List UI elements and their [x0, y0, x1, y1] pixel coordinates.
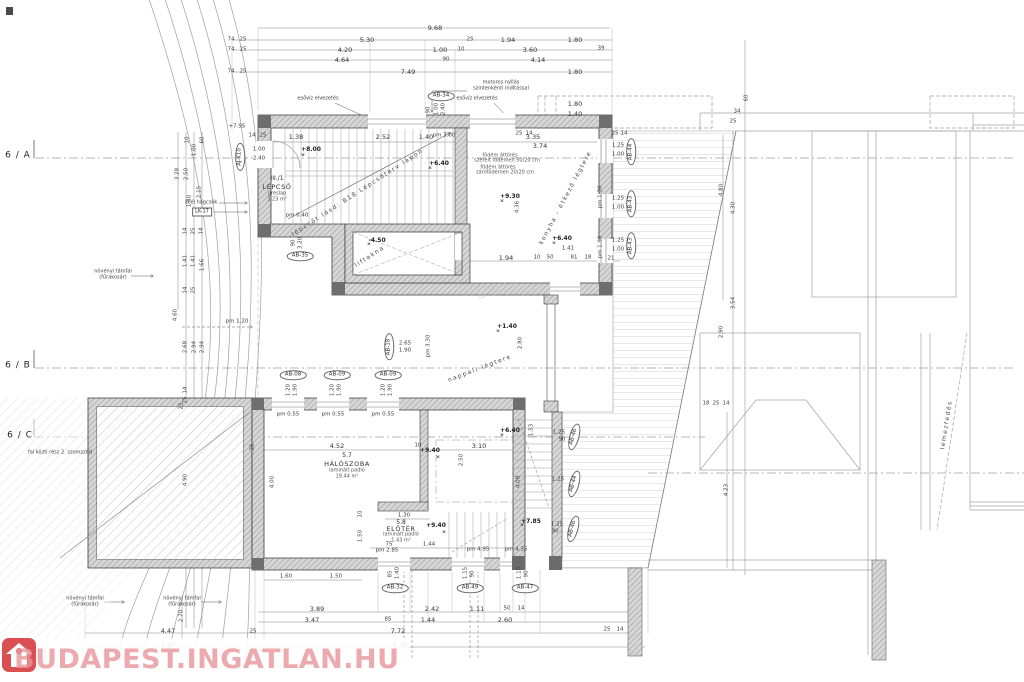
brand-text: BUDAPEST.INGATLAN.HU — [14, 644, 400, 675]
staircase — [285, 129, 453, 223]
middle-zone — [258, 237, 558, 412]
slope-bank — [562, 131, 736, 568]
floor-plan: 9.6874255.30251.941.8074254.201.00103.60… — [0, 0, 1024, 682]
grid-axis-ticks — [6, 7, 34, 437]
upper-floor-walls — [256, 113, 613, 297]
watermark: BUDAPEST.INGATLAN.HU — [2, 638, 410, 680]
lift-shaft — [345, 224, 470, 283]
terrace-block — [0, 398, 252, 660]
plan-drawing — [0, 0, 1024, 682]
lower-floor-walls — [252, 396, 525, 572]
